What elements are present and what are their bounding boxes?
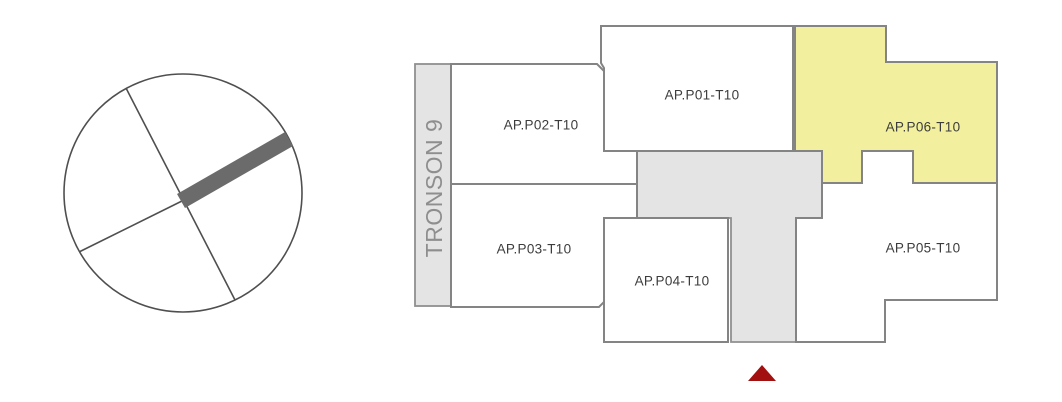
apartment-label-p04: AP.P04-T10 bbox=[635, 274, 710, 289]
apartment-label-p03: AP.P03-T10 bbox=[497, 242, 572, 257]
apartment-label-p02: AP.P02-T10 bbox=[504, 118, 579, 133]
floor-selector-screen: TRONSON 9 AP.P01-T10 AP.P02-T10 AP.P03-T… bbox=[0, 0, 1062, 402]
apartment-label-p05: AP.P05-T10 bbox=[886, 241, 961, 256]
floor-selector-canvas: TRONSON 9 AP.P01-T10 AP.P02-T10 AP.P03-T… bbox=[0, 0, 1062, 402]
tronson-bar-label: TRONSON 9 bbox=[421, 119, 447, 258]
floor-plan: TRONSON 9 AP.P01-T10 AP.P02-T10 AP.P03-T… bbox=[415, 26, 997, 381]
active-section-segment-indicator bbox=[181, 139, 289, 201]
site-overview bbox=[64, 74, 302, 312]
entrance-arrow-icon bbox=[748, 365, 776, 381]
apartment-label-p01: AP.P01-T10 bbox=[665, 88, 740, 103]
site-divider-line-2 bbox=[79, 199, 186, 252]
apartment-label-p06: AP.P06-T10 bbox=[886, 120, 961, 135]
